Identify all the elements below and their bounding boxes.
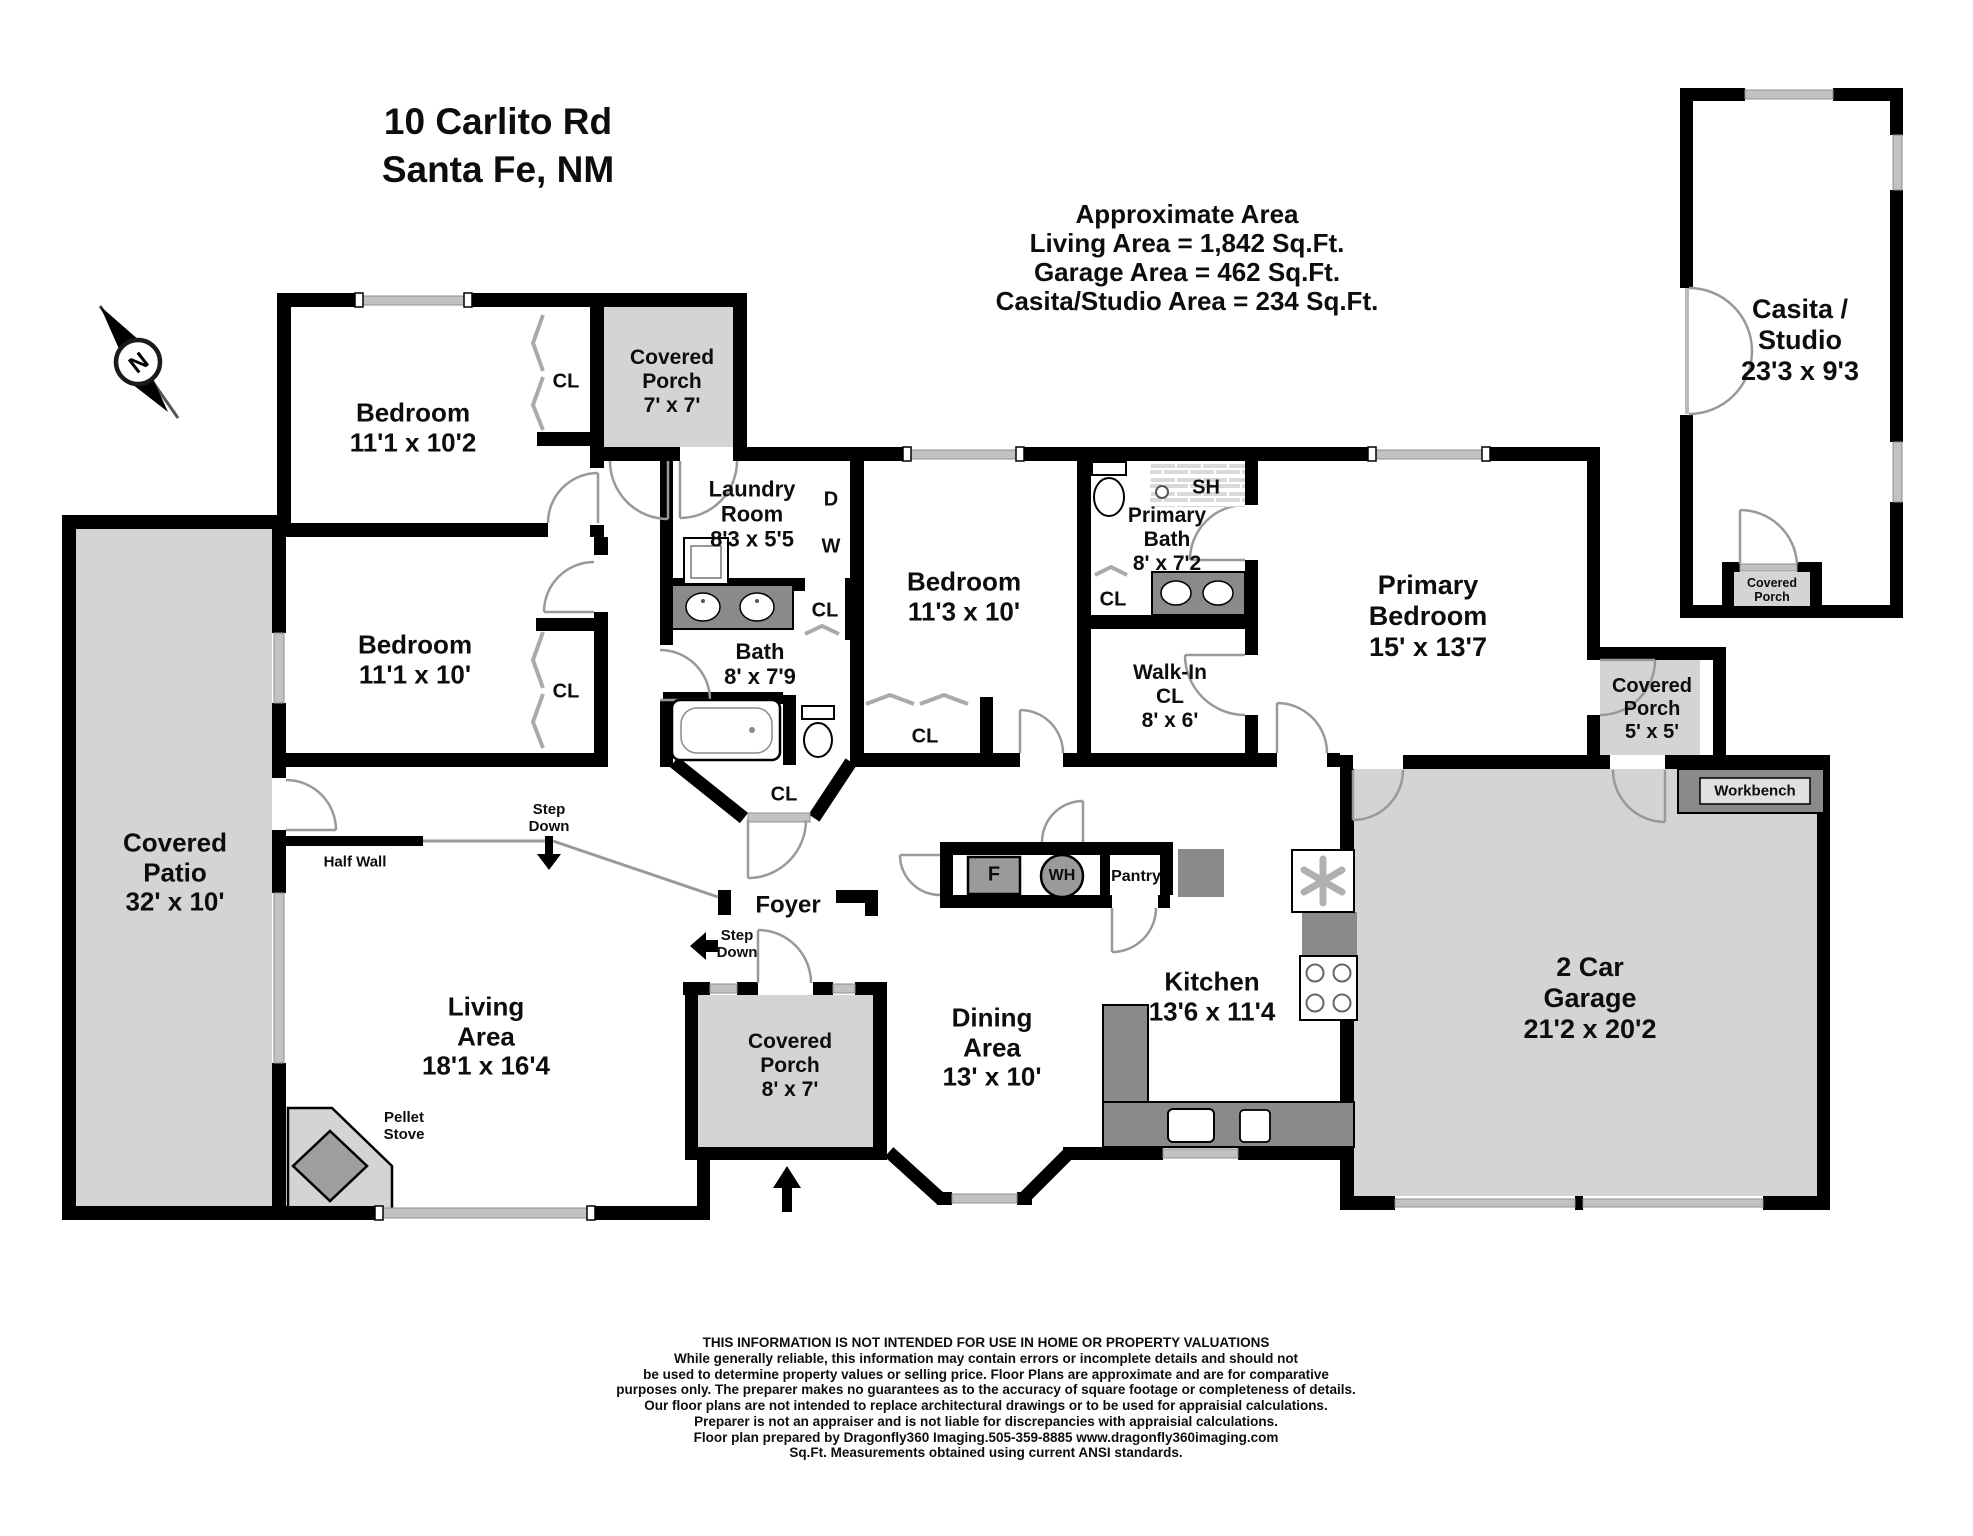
room-label-primary-bedroom: Primary Bedroom15' x 13'7 [1336, 570, 1521, 662]
shower-label: SH [1192, 477, 1220, 500]
closet-label-primary: CL [1100, 589, 1127, 612]
half-wall-lines [423, 841, 718, 897]
room-label-bedroom-center: Bedroom11'3 x 10' [874, 567, 1054, 626]
closet-label-hall: CL [771, 784, 798, 807]
room-label-living: Living Area18'1 x 16'4 [421, 993, 551, 1082]
area-heading: Approximate Area [907, 200, 1467, 229]
foyer-label: Foyer [755, 891, 820, 918]
room-label-casita: Casita / Studio23'3 x 9'3 [1715, 294, 1885, 386]
closet-label-bedroom-mid: CL [553, 681, 580, 704]
washer-label: W [822, 536, 841, 559]
room-label-walk-in-closet: Walk-In CL8' x 6' [1120, 661, 1220, 733]
room-label-covered-porch-casita: Covered Porch [1736, 576, 1808, 605]
room-label-bedroom-mid: Bedroom11'1 x 10' [325, 630, 505, 689]
entry-arrow-icon [773, 1166, 801, 1212]
room-label-garage: 2 Car Garage21'2 x 20'2 [1510, 952, 1670, 1044]
room-label-bedroom-top: Bedroom11'1 x 10'2 [323, 398, 503, 457]
area-living: Living Area = 1,842 Sq.Ft. [907, 229, 1467, 258]
closet-label-linen: CL [812, 600, 839, 623]
room-label-covered-porch-entry: Covered Porch8' x 7' [738, 1030, 843, 1102]
room-label-laundry: Laundry Room8'3 x 5'5 [687, 476, 817, 551]
room-label-covered-patio: Covered Patio32' x 10' [115, 829, 235, 918]
room-label-covered-porch-top: Covered Porch7' x 7' [617, 346, 727, 418]
ceiling-fan-icon [1292, 850, 1354, 912]
step-down-label-1: Step Down [522, 801, 577, 835]
room-label-bath: Bath8' x 7'9 [700, 639, 820, 689]
workbench-label: Workbench [1714, 782, 1795, 799]
half-wall-label: Half Wall [324, 853, 387, 870]
bath-vanity [672, 585, 793, 629]
disclaimer: THIS INFORMATION IS NOT INTENDED FOR USE… [486, 1335, 1486, 1461]
compass-north-icon: N [100, 306, 178, 418]
area-summary: Approximate Area Living Area = 1,842 Sq.… [907, 200, 1467, 316]
closet-label-bedroom-center: CL [912, 726, 939, 749]
room-label-dining: Dining Area13' x 10' [937, 1004, 1047, 1093]
step-down-label-2: Step Down [710, 927, 765, 961]
pellet-stove-label: Pellet Stove [369, 1109, 439, 1143]
dryer-label: D [824, 489, 838, 512]
primary-vanity [1152, 572, 1245, 615]
pantry-cabinet [1178, 849, 1224, 897]
page-title: 10 Carlito Rd Santa Fe, NM [288, 98, 708, 194]
water-heater-label: WH [1049, 867, 1076, 885]
room-label-kitchen: Kitchen13'6 x 11'4 [1117, 967, 1307, 1026]
room-label-covered-porch-primary: Covered Porch5' x 5' [1602, 675, 1702, 743]
bathtub [672, 700, 780, 760]
kitchen-counters [1103, 912, 1357, 1147]
stove [1300, 956, 1357, 1020]
pantry-label: Pantry [1111, 868, 1161, 886]
room-label-primary-bath: Primary Bath8' x 7'2 [1112, 504, 1222, 576]
address-line2: Santa Fe, NM [288, 146, 708, 194]
floor-plan-page: N 10 Carlito Rd Santa Fe, NM Approximate… [0, 0, 1973, 1536]
step-down-arrow-icon [537, 836, 718, 960]
area-casita: Casita/Studio Area = 234 Sq.Ft. [907, 287, 1467, 316]
closet-label-bedroom-top: CL [553, 371, 580, 394]
fridge-label: F [988, 864, 1000, 887]
address-line1: 10 Carlito Rd [288, 98, 708, 146]
area-garage: Garage Area = 462 Sq.Ft. [907, 258, 1467, 287]
bath-toilet [802, 706, 834, 757]
